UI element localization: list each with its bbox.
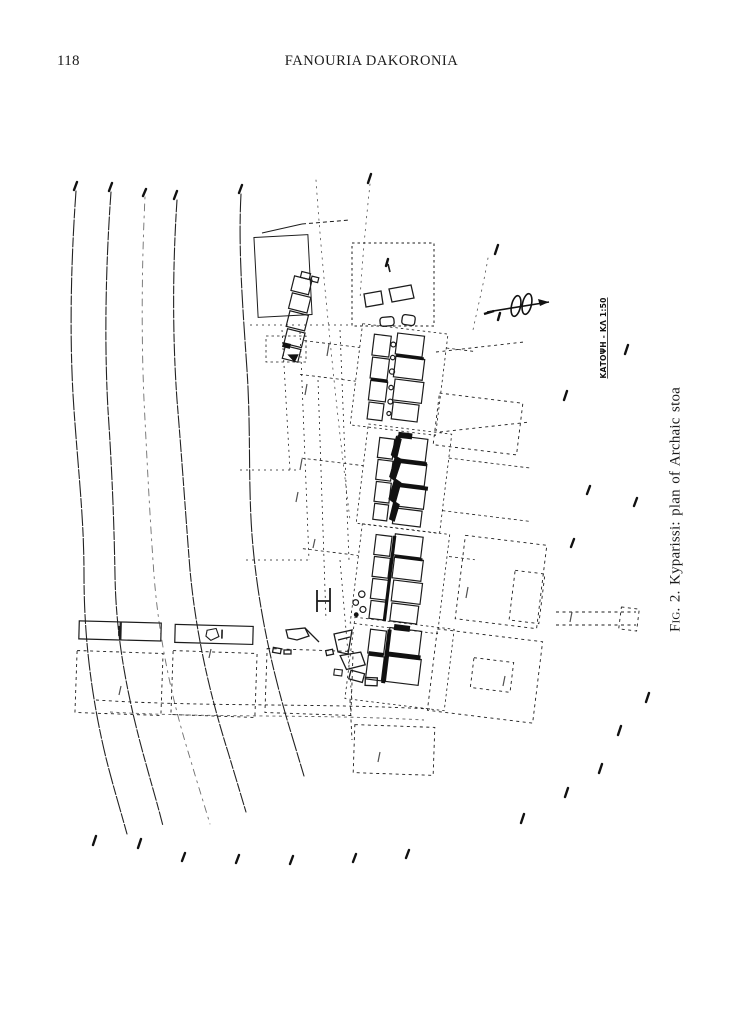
tiny-label-marks	[119, 344, 572, 762]
stoa-wall-segment-d	[295, 517, 478, 637]
plan-scale-label: ΚΑΤΟΨΗ - ΚΛ 1:50	[599, 297, 608, 378]
long-wall-strips	[79, 621, 253, 645]
stoa-wall-segment-e	[331, 615, 454, 710]
trench-top	[254, 220, 434, 327]
stoa-wall-segment-b	[295, 317, 478, 439]
site-plan-figure: ΚΑΤΟΨΗ - ΚΛ 1:50	[0, 0, 743, 1024]
trench-grid-east	[427, 342, 639, 723]
figure-caption: Fig. 2. Kyparissi: plan of Archaic stoa	[668, 379, 685, 641]
trench-grid-southwest	[75, 649, 435, 776]
stone-features	[273, 588, 352, 656]
svg-text:ΚΑΤΟΨΗ - ΚΛ 1:50: ΚΑΤΟΨΗ - ΚΛ 1:50	[599, 297, 608, 378]
figure-caption-number: Fig. 2.	[668, 590, 684, 632]
trench-edges	[240, 325, 352, 700]
figure-caption-text: Kyparissi: plan of Archaic stoa	[668, 387, 684, 585]
survey-ticks	[74, 174, 649, 864]
stoa-wall-segment-c	[295, 416, 541, 544]
north-arrow-icon	[484, 293, 549, 317]
scanned-page: 118 FANOURIA DAKORONIA	[0, 0, 743, 1024]
contour-lines	[71, 180, 488, 834]
